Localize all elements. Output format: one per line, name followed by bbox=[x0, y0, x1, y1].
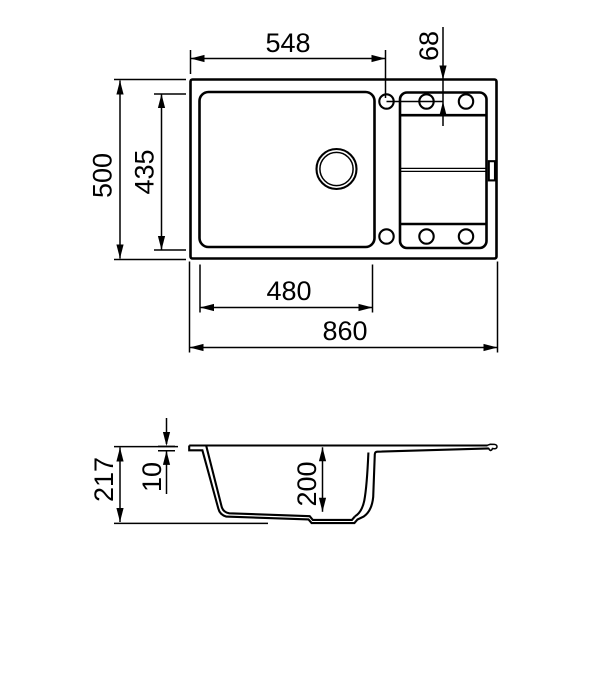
sink-outline bbox=[191, 80, 497, 259]
arrowhead bbox=[190, 344, 204, 351]
overflow-slot bbox=[489, 161, 495, 180]
dim-label-bowl-width: 480 bbox=[266, 276, 311, 306]
profile-outer-contour bbox=[189, 446, 489, 524]
arrowhead bbox=[484, 344, 498, 351]
bowl-outline bbox=[200, 92, 375, 247]
drain-outer-circle bbox=[317, 149, 357, 189]
technical-drawing: 548 68 500 435 bbox=[0, 0, 600, 689]
arrowhead bbox=[439, 66, 446, 80]
tap-hole bbox=[459, 94, 473, 108]
dim-217: 217 bbox=[89, 447, 268, 524]
tap-hole bbox=[459, 229, 473, 243]
top-view: 548 68 500 435 bbox=[88, 27, 498, 353]
arrowhead bbox=[158, 236, 165, 250]
dim-68: 68 bbox=[387, 27, 447, 126]
profile-inner-bowl bbox=[206, 446, 355, 520]
dim-label-tap-edge-offset: 68 bbox=[414, 31, 444, 61]
arrowhead bbox=[191, 55, 205, 62]
drawing-page: 548 68 500 435 bbox=[0, 0, 600, 689]
side-view: 217 10 200 bbox=[89, 418, 497, 523]
profile-inner-right-wall bbox=[355, 453, 369, 517]
dim-480: 480 bbox=[200, 265, 373, 313]
dim-label-total-height: 217 bbox=[89, 457, 119, 502]
arrowhead bbox=[372, 55, 386, 62]
drain-inner-circle bbox=[320, 152, 353, 185]
dim-10: 10 bbox=[137, 418, 175, 494]
dim-label-bowl-depth: 200 bbox=[292, 461, 322, 506]
arrowhead bbox=[319, 447, 326, 461]
dim-label-bowl-front-to-back: 435 bbox=[130, 149, 160, 194]
dim-label-rim-thickness: 10 bbox=[137, 462, 167, 492]
dim-548: 548 bbox=[191, 28, 386, 98]
arrowhead bbox=[158, 94, 165, 108]
arrowhead bbox=[116, 508, 123, 522]
tap-hole bbox=[419, 229, 433, 243]
dim-435: 435 bbox=[130, 94, 187, 250]
arrowhead bbox=[163, 432, 170, 446]
arrowhead bbox=[116, 81, 123, 95]
tap-hole bbox=[379, 229, 393, 243]
dim-label-overall-depth: 500 bbox=[88, 153, 118, 198]
dim-label-tap-distance: 548 bbox=[265, 28, 310, 58]
arrowhead bbox=[359, 304, 373, 311]
arrowhead bbox=[116, 245, 123, 259]
arrowhead bbox=[200, 304, 214, 311]
dim-label-overall-width: 860 bbox=[322, 316, 367, 346]
dim-200: 200 bbox=[292, 447, 326, 512]
